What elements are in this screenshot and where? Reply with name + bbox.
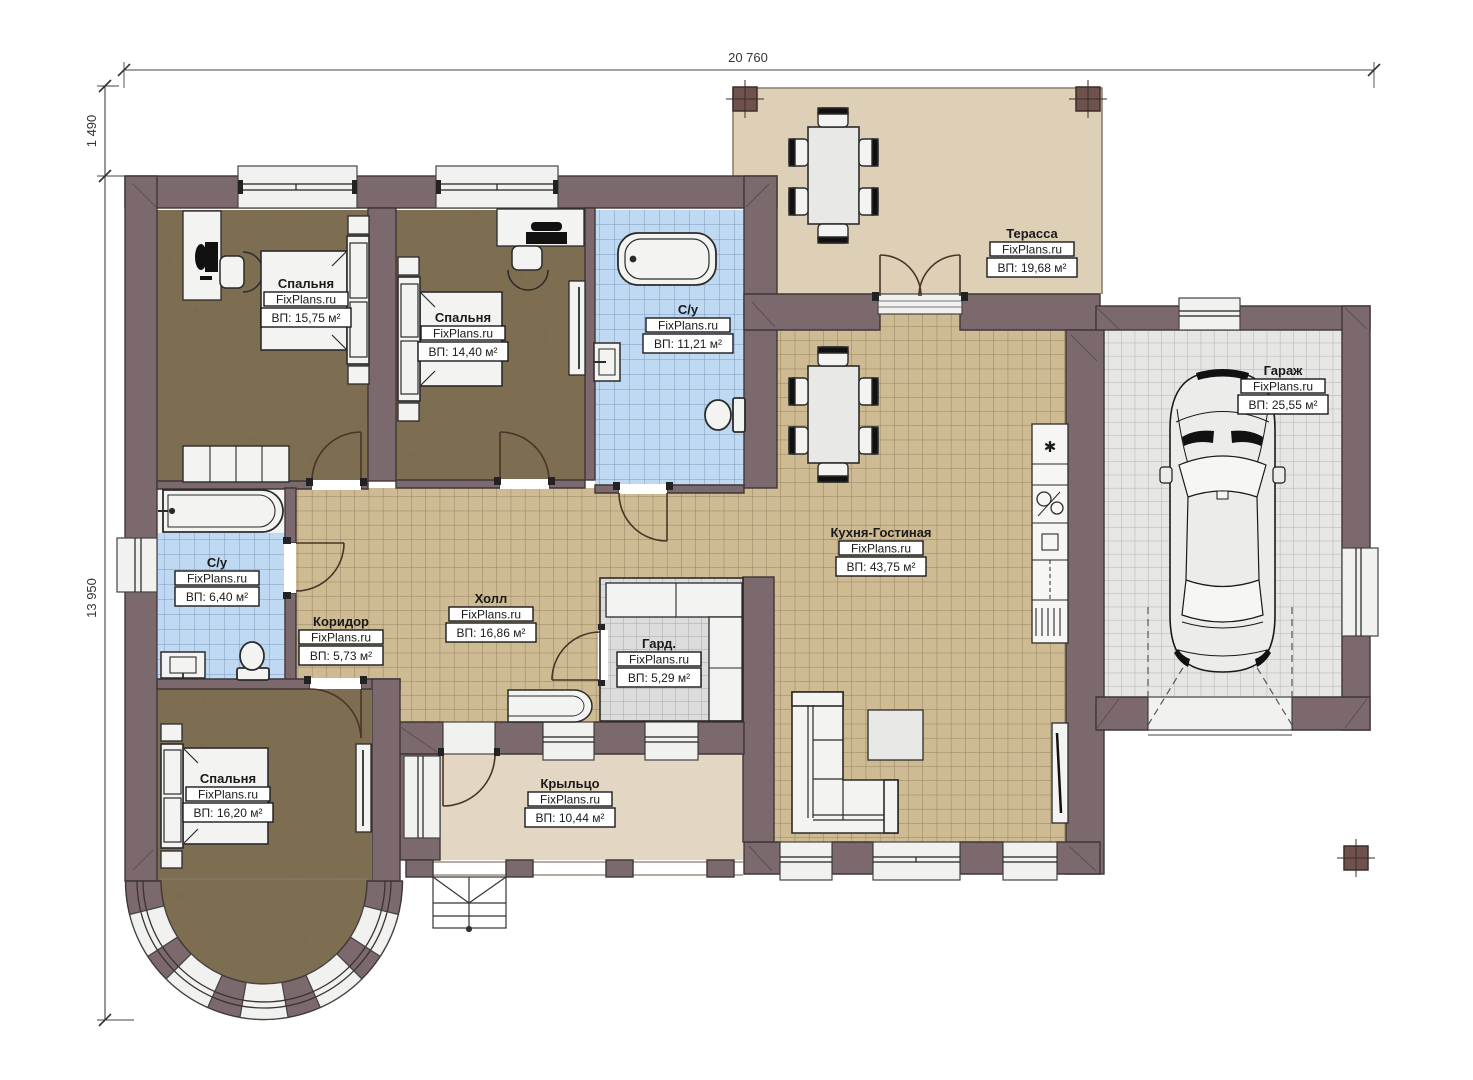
svg-text:20 760: 20 760 (728, 50, 768, 65)
svg-text:ВП: 25,55 м²: ВП: 25,55 м² (1249, 398, 1318, 412)
svg-text:FixPlans.ru: FixPlans.ru (658, 319, 718, 333)
svg-text:ВП: 5,29 м²: ВП: 5,29 м² (628, 671, 690, 685)
svg-text:ВП: 14,40 м²: ВП: 14,40 м² (429, 345, 498, 359)
svg-text:ВП: 5,73 м²: ВП: 5,73 м² (310, 649, 372, 663)
svg-text:ВП: 19,68 м²: ВП: 19,68 м² (998, 261, 1067, 275)
svg-text:FixPlans.ru: FixPlans.ru (540, 793, 600, 807)
svg-text:FixPlans.ru: FixPlans.ru (629, 653, 689, 667)
svg-text:FixPlans.ru: FixPlans.ru (187, 572, 247, 586)
svg-text:С/у: С/у (207, 555, 228, 570)
svg-text:ВП: 6,40 м²: ВП: 6,40 м² (186, 590, 248, 604)
svg-text:Спальня: Спальня (435, 310, 491, 325)
svg-text:FixPlans.ru: FixPlans.ru (276, 293, 336, 307)
svg-text:Гараж: Гараж (1264, 363, 1304, 378)
svg-text:FixPlans.ru: FixPlans.ru (1002, 243, 1062, 257)
svg-text:FixPlans.ru: FixPlans.ru (1253, 380, 1313, 394)
svg-text:ВП: 11,21 м²: ВП: 11,21 м² (654, 337, 722, 351)
svg-text:ВП: 16,86 м²: ВП: 16,86 м² (457, 626, 526, 640)
svg-text:✱: ✱ (1044, 439, 1057, 456)
svg-text:Холл: Холл (475, 591, 508, 606)
svg-text:13 950: 13 950 (84, 578, 99, 618)
svg-text:Коридор: Коридор (313, 614, 369, 629)
svg-text:ВП: 15,75 м²: ВП: 15,75 м² (272, 311, 341, 325)
svg-text:ВП: 16,20 м²: ВП: 16,20 м² (194, 806, 263, 820)
svg-text:FixPlans.ru: FixPlans.ru (433, 327, 493, 341)
svg-text:FixPlans.ru: FixPlans.ru (198, 788, 258, 802)
svg-text:FixPlans.ru: FixPlans.ru (461, 608, 521, 622)
svg-text:Спальня: Спальня (278, 276, 334, 291)
svg-text:FixPlans.ru: FixPlans.ru (851, 542, 911, 556)
svg-text:С/у: С/у (678, 302, 699, 317)
svg-text:Терасса: Терасса (1006, 226, 1058, 241)
svg-text:Кухня-Гостиная: Кухня-Гостиная (830, 525, 931, 540)
svg-text:FixPlans.ru: FixPlans.ru (311, 631, 371, 645)
svg-text:1 490: 1 490 (84, 115, 99, 148)
svg-text:Спальня: Спальня (200, 771, 256, 786)
svg-text:ВП: 43,75 м²: ВП: 43,75 м² (847, 560, 916, 574)
svg-text:Гард.: Гард. (642, 636, 676, 651)
svg-text:Крыльцо: Крыльцо (540, 776, 599, 791)
svg-text:ВП: 10,44 м²: ВП: 10,44 м² (536, 811, 605, 825)
